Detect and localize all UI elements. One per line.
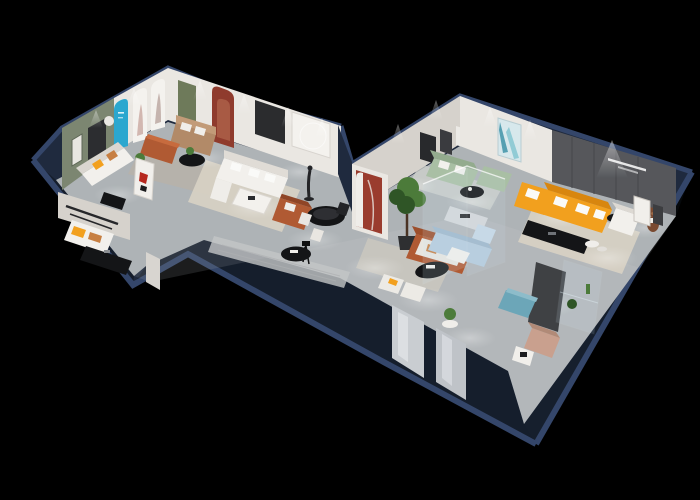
magazine <box>290 250 298 253</box>
mannequin-base <box>304 197 314 201</box>
table-decor <box>248 196 255 200</box>
pedestal-plant <box>444 308 456 320</box>
light-pool <box>345 256 405 280</box>
red-niche-inner <box>217 99 230 141</box>
dining-table-top <box>313 208 339 220</box>
black-oval-table <box>281 247 311 262</box>
magazine-cover <box>520 352 527 357</box>
cactus-plant <box>586 284 590 294</box>
glass-pane <box>467 166 505 276</box>
black-coffee-table <box>179 154 205 167</box>
round-mirror <box>104 116 114 126</box>
leaning-art-frame <box>653 204 663 226</box>
display-plant <box>567 299 577 309</box>
light-pool <box>578 246 638 270</box>
column-arch-cut <box>356 173 363 228</box>
console-decor <box>104 250 110 253</box>
arch-sign-marks <box>118 117 123 118</box>
pedestal-table <box>442 320 458 328</box>
tree-foliage <box>397 196 415 214</box>
mannequin-head <box>308 166 313 171</box>
blue-arch-sign <box>114 99 128 150</box>
floorplan-svg <box>0 0 700 500</box>
arch-sign-marks <box>118 112 124 114</box>
tripod-head <box>302 241 310 246</box>
leaning-art-frame <box>634 196 650 226</box>
nesting-table <box>597 247 607 252</box>
console-decor <box>548 232 556 235</box>
glass-pane <box>423 166 467 284</box>
dark-art-frame <box>440 129 452 155</box>
mirror-reflection <box>442 334 452 386</box>
mannequin-body <box>308 170 310 197</box>
showroom-render <box>0 0 700 500</box>
nesting-table <box>585 241 599 248</box>
small-art-frame <box>72 134 82 166</box>
glass-room <box>423 166 505 284</box>
table-plant <box>186 147 194 155</box>
mirror-reflection <box>398 312 408 362</box>
